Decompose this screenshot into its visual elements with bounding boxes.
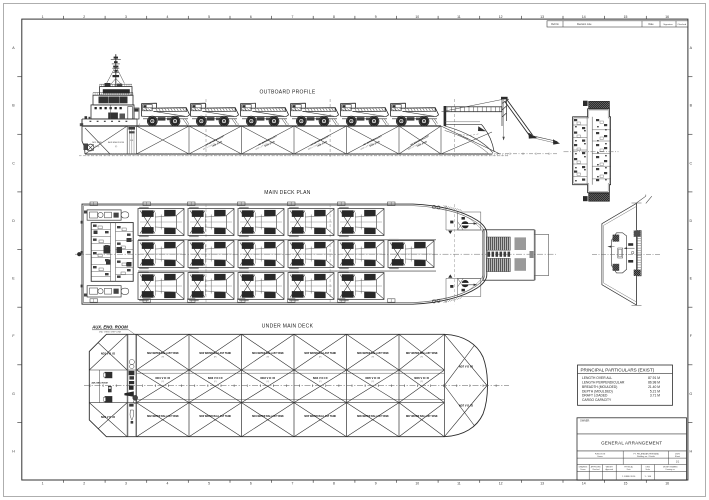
svg-text:6: 6	[250, 15, 252, 19]
svg-text:NO1 V O I D: NO1 V O I D	[156, 376, 171, 380]
svg-text:Checked: Checked	[592, 469, 599, 471]
svg-text:NO3 WATER BALLAST TANK: NO3 WATER BALLAST TANK	[199, 415, 231, 418]
svg-text:AUX. ENG. ROOM: AUX. ENG. ROOM	[91, 325, 128, 330]
svg-text:1: 1	[42, 15, 44, 19]
svg-text:Checked: Checked	[677, 24, 686, 26]
svg-text:16: 16	[665, 15, 669, 19]
svg-text:D: D	[12, 219, 15, 223]
svg-text:10: 10	[415, 15, 419, 19]
svg-text:1 JUNE 2010: 1 JUNE 2010	[622, 476, 636, 478]
svg-text:PHYSICAL: PHYSICAL	[624, 466, 633, 469]
svg-text:15: 15	[624, 482, 628, 486]
svg-text:13: 13	[540, 482, 544, 486]
svg-text:NO1 VOID: NO1 VOID	[92, 142, 102, 144]
svg-text:Date: Date	[627, 468, 631, 471]
svg-text:NO4 WATER BALLAST TANK: NO4 WATER BALLAST TANK	[252, 415, 284, 418]
svg-text:3: 3	[125, 482, 127, 486]
svg-text:Sheet: Sheet	[675, 455, 681, 458]
svg-text:5: 5	[208, 15, 210, 19]
svg-text:NO1 V O I D: NO1 V O I D	[101, 416, 115, 419]
svg-text:21.40 M: 21.40 M	[648, 385, 660, 389]
svg-text:C: C	[689, 161, 692, 165]
svg-text:15: 15	[624, 15, 628, 19]
svg-text:14: 14	[582, 482, 586, 486]
svg-text:PRINCIPAL PARTICULARS (EXIST): PRINCIPAL PARTICULARS (EXIST)	[581, 367, 655, 372]
svg-text:(C): (C)	[162, 381, 165, 383]
svg-text:(S): (S)	[214, 420, 217, 422]
svg-text:OUTBOARD PROFILE: OUTBOARD PROFILE	[260, 90, 316, 96]
svg-text:(C): (C)	[319, 381, 322, 383]
svg-text:OWNER:: OWNER:	[580, 420, 590, 423]
svg-text:NO6 V O I D: NO6 V O I D	[414, 376, 429, 380]
svg-text:DRAFT LOADED: DRAFT LOADED	[582, 394, 608, 398]
svg-text:(P): (P)	[162, 356, 165, 358]
svg-text:Revision note: Revision note	[577, 23, 592, 26]
svg-text:(S): (S)	[420, 420, 423, 422]
svg-text:F.W.: F.W.	[130, 140, 134, 142]
svg-text:9: 9	[375, 482, 377, 486]
svg-text:NO4 V O I D: NO4 V O I D	[313, 376, 328, 380]
svg-text:(S): (S)	[372, 420, 375, 422]
svg-text:(P): (P)	[267, 356, 270, 358]
svg-text:NO6 WATER BALLAST TANK: NO6 WATER BALLAST TANK	[357, 352, 389, 355]
svg-text:7: 7	[291, 482, 293, 486]
svg-text:LENGTH OVER ALL: LENGTH OVER ALL	[582, 376, 612, 380]
svg-text:1: 1	[42, 482, 44, 486]
svg-text:87.91 M: 87.91 M	[648, 376, 660, 380]
svg-text:AUX ENG ROOM: AUX ENG ROOM	[108, 141, 124, 144]
svg-text:NO2 WATER BALLAST TANK: NO2 WATER BALLAST TANK	[147, 352, 179, 355]
svg-text:3.71 M: 3.71 M	[650, 394, 660, 398]
svg-text:WEIGHT: WEIGHT	[606, 467, 614, 469]
svg-text:NO7 V O I D: NO7 V O I D	[459, 366, 473, 369]
svg-text:7: 7	[291, 15, 293, 19]
svg-text:D: D	[689, 219, 692, 223]
svg-text:NO1 V O I D: NO1 V O I D	[101, 353, 115, 356]
svg-text:UNDER MAIN DECK: UNDER MAIN DECK	[262, 323, 314, 329]
svg-text:C: C	[12, 161, 15, 165]
svg-text:(C): (C)	[372, 381, 375, 383]
svg-text:3: 3	[125, 15, 127, 19]
svg-text:Drawing no.: Drawing no.	[666, 469, 676, 471]
svg-text:Scale: Scale	[646, 469, 651, 471]
svg-text:Approved: Approved	[605, 468, 613, 471]
svg-text:(S): (S)	[319, 420, 322, 422]
svg-text:2: 2	[83, 15, 85, 19]
svg-text:DWG: DWG	[646, 467, 651, 469]
svg-text:Signature: Signature	[663, 23, 673, 26]
svg-text:(C): (C)	[420, 381, 423, 383]
svg-text:NO7 WATER BALLAST TANK: NO7 WATER BALLAST TANK	[406, 352, 438, 355]
svg-text:11: 11	[457, 482, 461, 486]
svg-text:13: 13	[540, 15, 544, 19]
svg-text:APPROVED: APPROVED	[591, 466, 602, 469]
svg-text:(P): (P)	[372, 356, 375, 358]
svg-text:14: 14	[582, 15, 586, 19]
svg-text:10: 10	[415, 482, 419, 486]
svg-text:NO5 V O I D: NO5 V O I D	[366, 376, 381, 380]
svg-text:MAIN DECK PLAN: MAIN DECK PLAN	[264, 190, 311, 196]
svg-text:BREADTH (MOULDED): BREADTH (MOULDED)	[582, 385, 617, 389]
svg-text:Ref.No: Ref.No	[551, 23, 559, 26]
svg-text:(C): (C)	[214, 381, 217, 383]
svg-text:NO2 V O I D: NO2 V O I D	[208, 376, 223, 380]
svg-text:NO3 WATER BALLAST TANK: NO3 WATER BALLAST TANK	[199, 352, 231, 355]
svg-text:(C): (C)	[267, 381, 270, 383]
svg-text:16: 16	[665, 482, 669, 486]
svg-text:DWG: DWG	[675, 453, 680, 455]
svg-text:8: 8	[333, 482, 335, 486]
svg-text:4: 4	[167, 15, 169, 19]
svg-text:NO3 V O I D: NO3 V O I D	[261, 376, 276, 380]
svg-text:H: H	[12, 449, 15, 453]
svg-text:FUNCTION: FUNCTION	[595, 453, 606, 455]
svg-text:9: 9	[375, 15, 377, 19]
svg-text:NO5 WATER BALLAST TANK: NO5 WATER BALLAST TANK	[304, 415, 336, 418]
svg-text:Date: Date	[648, 23, 654, 26]
svg-text:12: 12	[499, 15, 503, 19]
svg-text:11: 11	[457, 15, 461, 19]
svg-text:NO6 WATER BALLAST TANK: NO6 WATER BALLAST TANK	[357, 415, 389, 418]
svg-text:(P): (P)	[214, 356, 217, 358]
svg-text:2ND VIEW, SHIP LINE: 2ND VIEW, SHIP LINE	[99, 332, 122, 334]
svg-text:6: 6	[250, 482, 252, 486]
svg-text:CARGO CAPACITY: CARGO CAPACITY	[582, 398, 612, 402]
svg-text:12: 12	[499, 482, 503, 486]
svg-text:1 : 100: 1 : 100	[644, 476, 651, 478]
svg-text:NO2 WATER BALLAST TANK: NO2 WATER BALLAST TANK	[147, 415, 179, 418]
svg-text:(S): (S)	[162, 420, 165, 422]
svg-text:DRAWING: DRAWING	[579, 466, 588, 469]
svg-text:GENERAL ARRANGEMENT: GENERAL ARRANGEMENT	[601, 440, 662, 445]
svg-text:5: 5	[208, 482, 210, 486]
svg-text:(P&S): (P&S)	[95, 146, 100, 148]
svg-text:NO4 WATER BALLAST TANK: NO4 WATER BALLAST TANK	[252, 352, 284, 355]
svg-text:NO7 WATER BALLAST TANK: NO7 WATER BALLAST TANK	[406, 415, 438, 418]
svg-text:MONEY SHARED: MONEY SHARED	[663, 466, 678, 469]
svg-text:G: G	[689, 392, 692, 396]
svg-text:8: 8	[333, 15, 335, 19]
svg-text:H: H	[689, 449, 692, 453]
svg-text:Drawn: Drawn	[580, 469, 585, 471]
svg-text:4: 4	[167, 482, 169, 486]
svg-text:PT. PELAYARAN PERTAMA: PT. PELAYARAN PERTAMA	[633, 452, 659, 455]
svg-text:(P): (P)	[420, 356, 423, 358]
svg-text:(S): (S)	[267, 420, 270, 422]
svg-text:G: G	[12, 392, 15, 396]
svg-text:(P): (P)	[319, 356, 322, 358]
svg-text:NO7 V O I D: NO7 V O I D	[459, 405, 473, 408]
svg-text:2: 2	[83, 482, 85, 486]
svg-text:NO5 WATER BALLAST TANK: NO5 WATER BALLAST TANK	[304, 352, 336, 355]
